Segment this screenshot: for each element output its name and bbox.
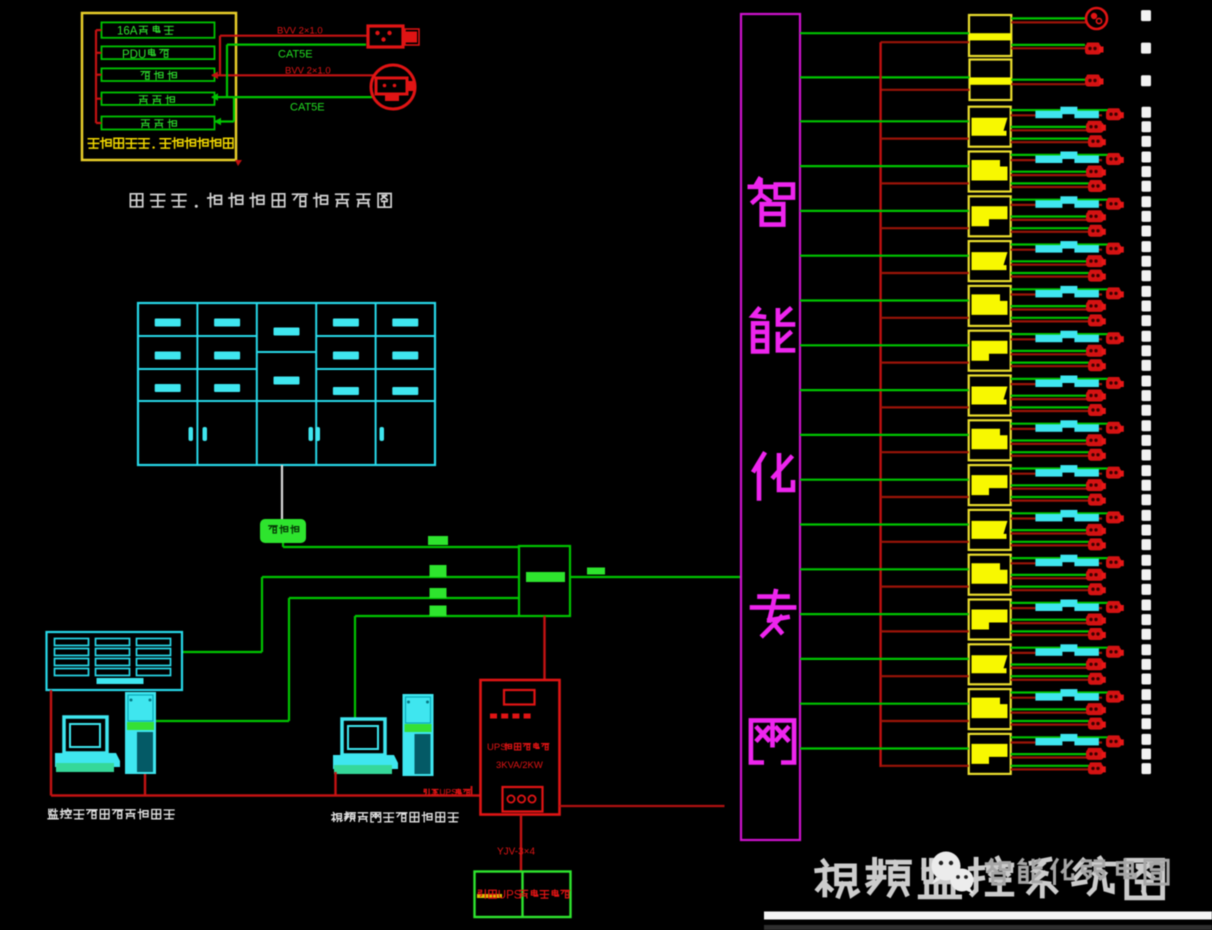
svg-text:YJV-3×4: YJV-3×4 bbox=[497, 847, 536, 858]
svg-text:PDU: PDU bbox=[122, 49, 146, 61]
svg-text:UPS: UPS bbox=[498, 889, 522, 901]
svg-text:UPS: UPS bbox=[439, 787, 457, 797]
svg-text:BVV 2×1.0: BVV 2×1.0 bbox=[285, 66, 331, 77]
svg-text:CAT5E: CAT5E bbox=[278, 49, 313, 61]
svg-text:UPS: UPS bbox=[487, 742, 507, 753]
svg-text:CAT5E: CAT5E bbox=[290, 102, 325, 114]
svg-text:16A: 16A bbox=[117, 25, 138, 37]
svg-text:BVV 2×1.0: BVV 2×1.0 bbox=[277, 26, 323, 37]
svg-text:3KVA/2KW: 3KVA/2KW bbox=[496, 760, 543, 771]
